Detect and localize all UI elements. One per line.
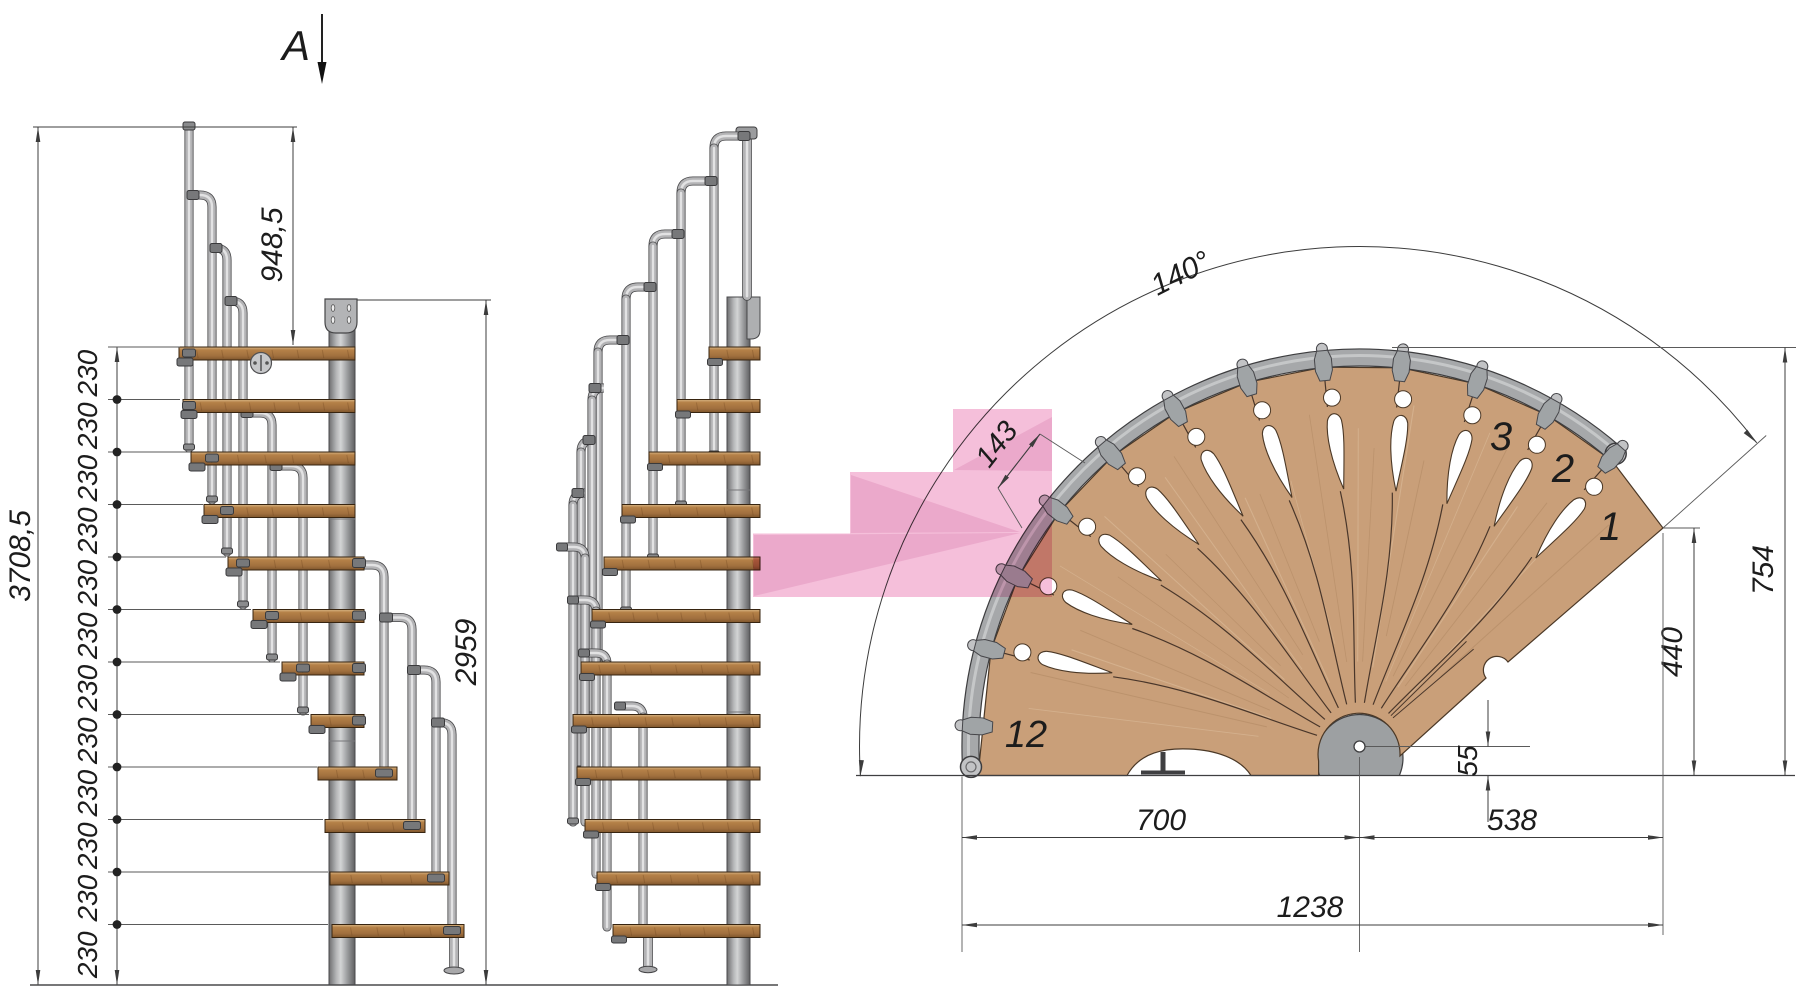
svg-text:1238: 1238: [1277, 891, 1344, 924]
svg-text:230: 230: [72, 507, 103, 555]
svg-text:230: 230: [72, 559, 103, 607]
svg-text:230: 230: [72, 874, 103, 922]
svg-text:754: 754: [1747, 545, 1780, 595]
svg-text:230: 230: [72, 717, 103, 765]
svg-text:3708,5: 3708,5: [4, 510, 37, 602]
svg-text:700: 700: [1136, 804, 1186, 837]
svg-text:1: 1: [1599, 505, 1621, 549]
svg-text:12: 12: [1005, 714, 1047, 756]
svg-text:230: 230: [72, 402, 103, 450]
svg-text:440: 440: [1656, 627, 1689, 677]
svg-text:948,5: 948,5: [256, 207, 289, 282]
svg-text:3: 3: [1490, 415, 1512, 459]
svg-text:230: 230: [72, 612, 103, 660]
svg-text:55: 55: [1452, 745, 1483, 777]
svg-text:2959: 2959: [450, 618, 483, 686]
svg-text:230: 230: [72, 454, 103, 502]
svg-text:538: 538: [1487, 804, 1537, 837]
svg-text:230: 230: [72, 349, 103, 397]
svg-text:2: 2: [1551, 447, 1574, 491]
svg-text:230: 230: [72, 931, 103, 979]
svg-text:230: 230: [72, 664, 103, 712]
svg-text:A: A: [279, 22, 310, 69]
svg-text:230: 230: [72, 822, 103, 870]
svg-text:230: 230: [72, 769, 103, 817]
